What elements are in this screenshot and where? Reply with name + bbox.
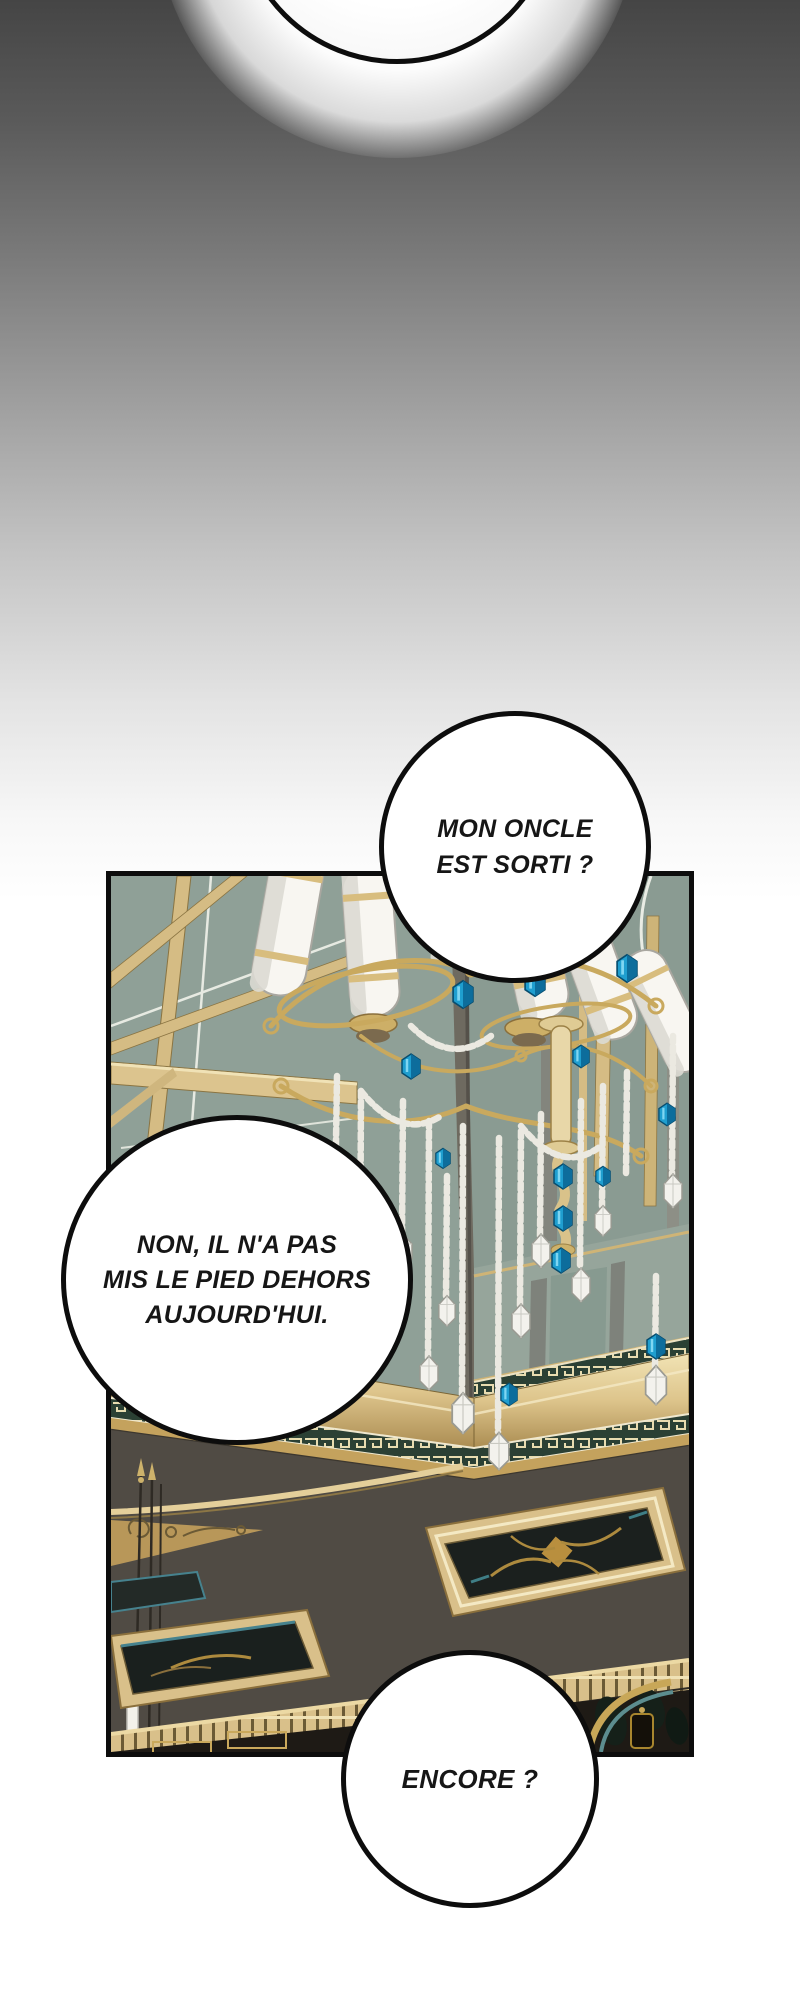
lantern bbox=[631, 1714, 653, 1748]
bubble-text-line: NON, IL N'A PAS bbox=[137, 1228, 337, 1263]
bubble-text-line: AUJOURD'HUI. bbox=[145, 1298, 328, 1333]
speech-bubble-uncle: MON ONCLE EST SORTI ? bbox=[379, 711, 651, 983]
bubble-text-line: EST SORTI ? bbox=[436, 847, 593, 883]
speech-bubble-again: ENCORE ? bbox=[341, 1650, 599, 1908]
bubble-text-line: MON ONCLE bbox=[437, 811, 592, 847]
bubble-text-line: ENCORE ? bbox=[402, 1761, 539, 1797]
comic-page: MON ONCLE EST SORTI ? NON, IL N'A PAS MI… bbox=[0, 0, 800, 2000]
speech-bubble-reply: NON, IL N'A PAS MIS LE PIED DEHORS AUJOU… bbox=[61, 1115, 413, 1445]
bubble-text-line: MIS LE PIED DEHORS bbox=[103, 1263, 371, 1298]
